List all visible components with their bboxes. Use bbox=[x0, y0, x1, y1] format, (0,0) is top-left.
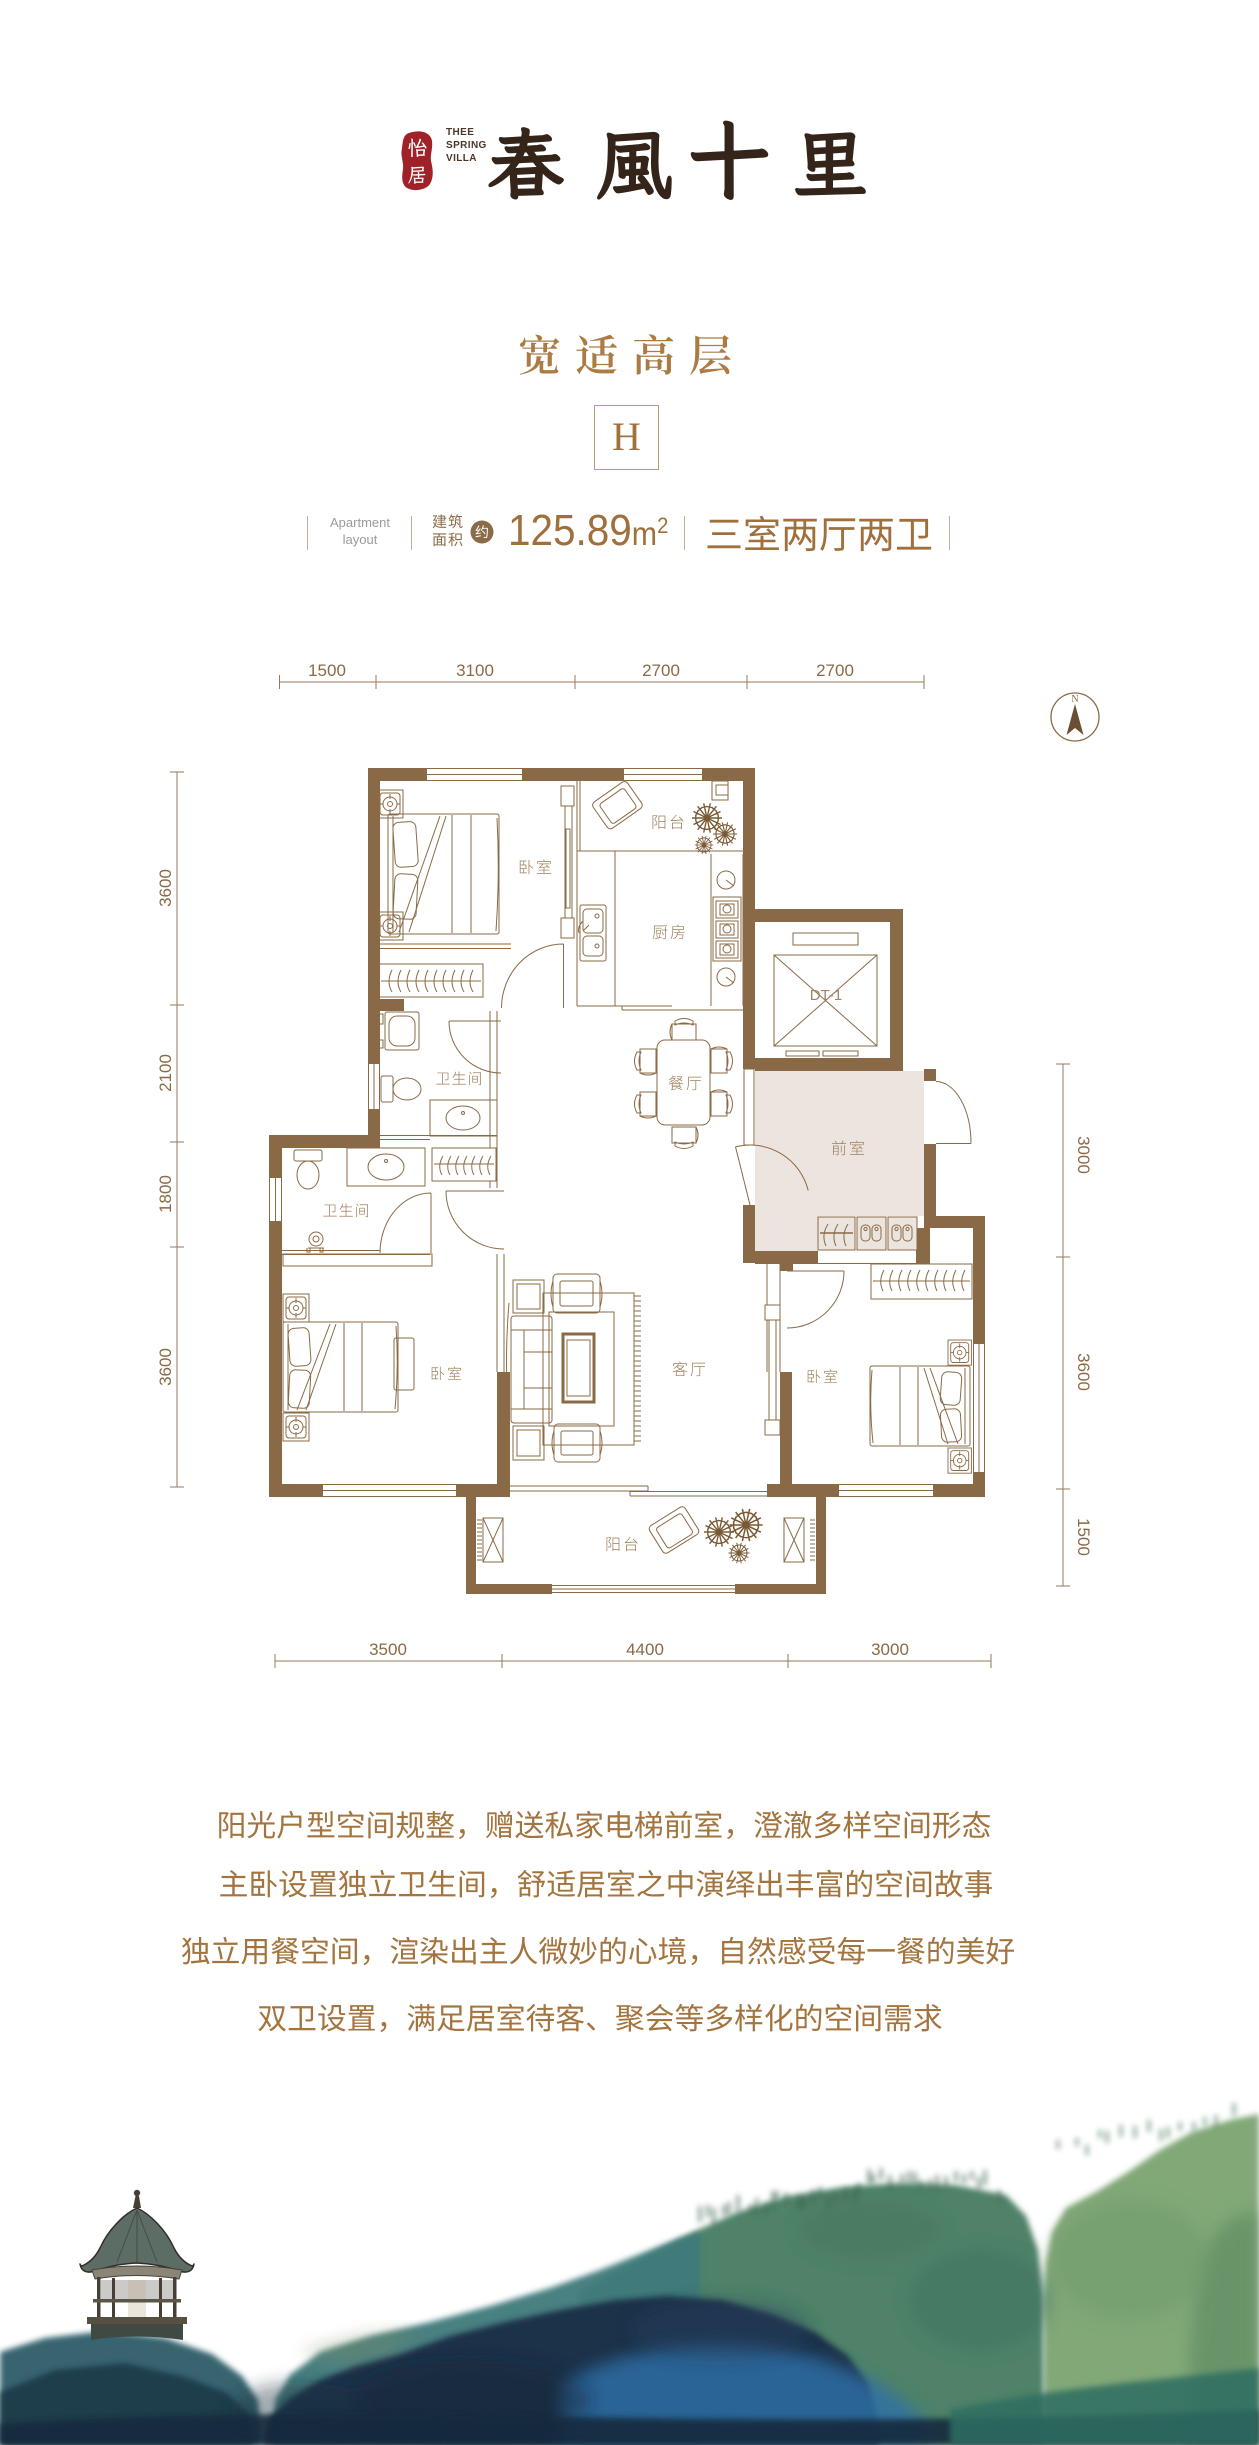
svg-text:3600: 3600 bbox=[156, 1348, 175, 1386]
svg-text:1800: 1800 bbox=[156, 1175, 175, 1213]
svg-text:DT-1: DT-1 bbox=[810, 987, 843, 1004]
svg-text:2700: 2700 bbox=[816, 661, 854, 680]
svg-text:3000: 3000 bbox=[871, 1640, 909, 1659]
svg-text:3600: 3600 bbox=[156, 869, 175, 907]
svg-text:2700: 2700 bbox=[642, 661, 680, 680]
svg-text:3600: 3600 bbox=[1074, 1353, 1093, 1391]
svg-text:N: N bbox=[1071, 694, 1078, 705]
svg-text:1500: 1500 bbox=[1074, 1518, 1093, 1556]
svg-text:2100: 2100 bbox=[156, 1054, 175, 1092]
svg-text:3100: 3100 bbox=[456, 661, 494, 680]
svg-text:3500: 3500 bbox=[369, 1640, 407, 1659]
svg-text:4400: 4400 bbox=[626, 1640, 664, 1659]
svg-text:3000: 3000 bbox=[1074, 1136, 1093, 1174]
svg-text:1500: 1500 bbox=[308, 661, 346, 680]
